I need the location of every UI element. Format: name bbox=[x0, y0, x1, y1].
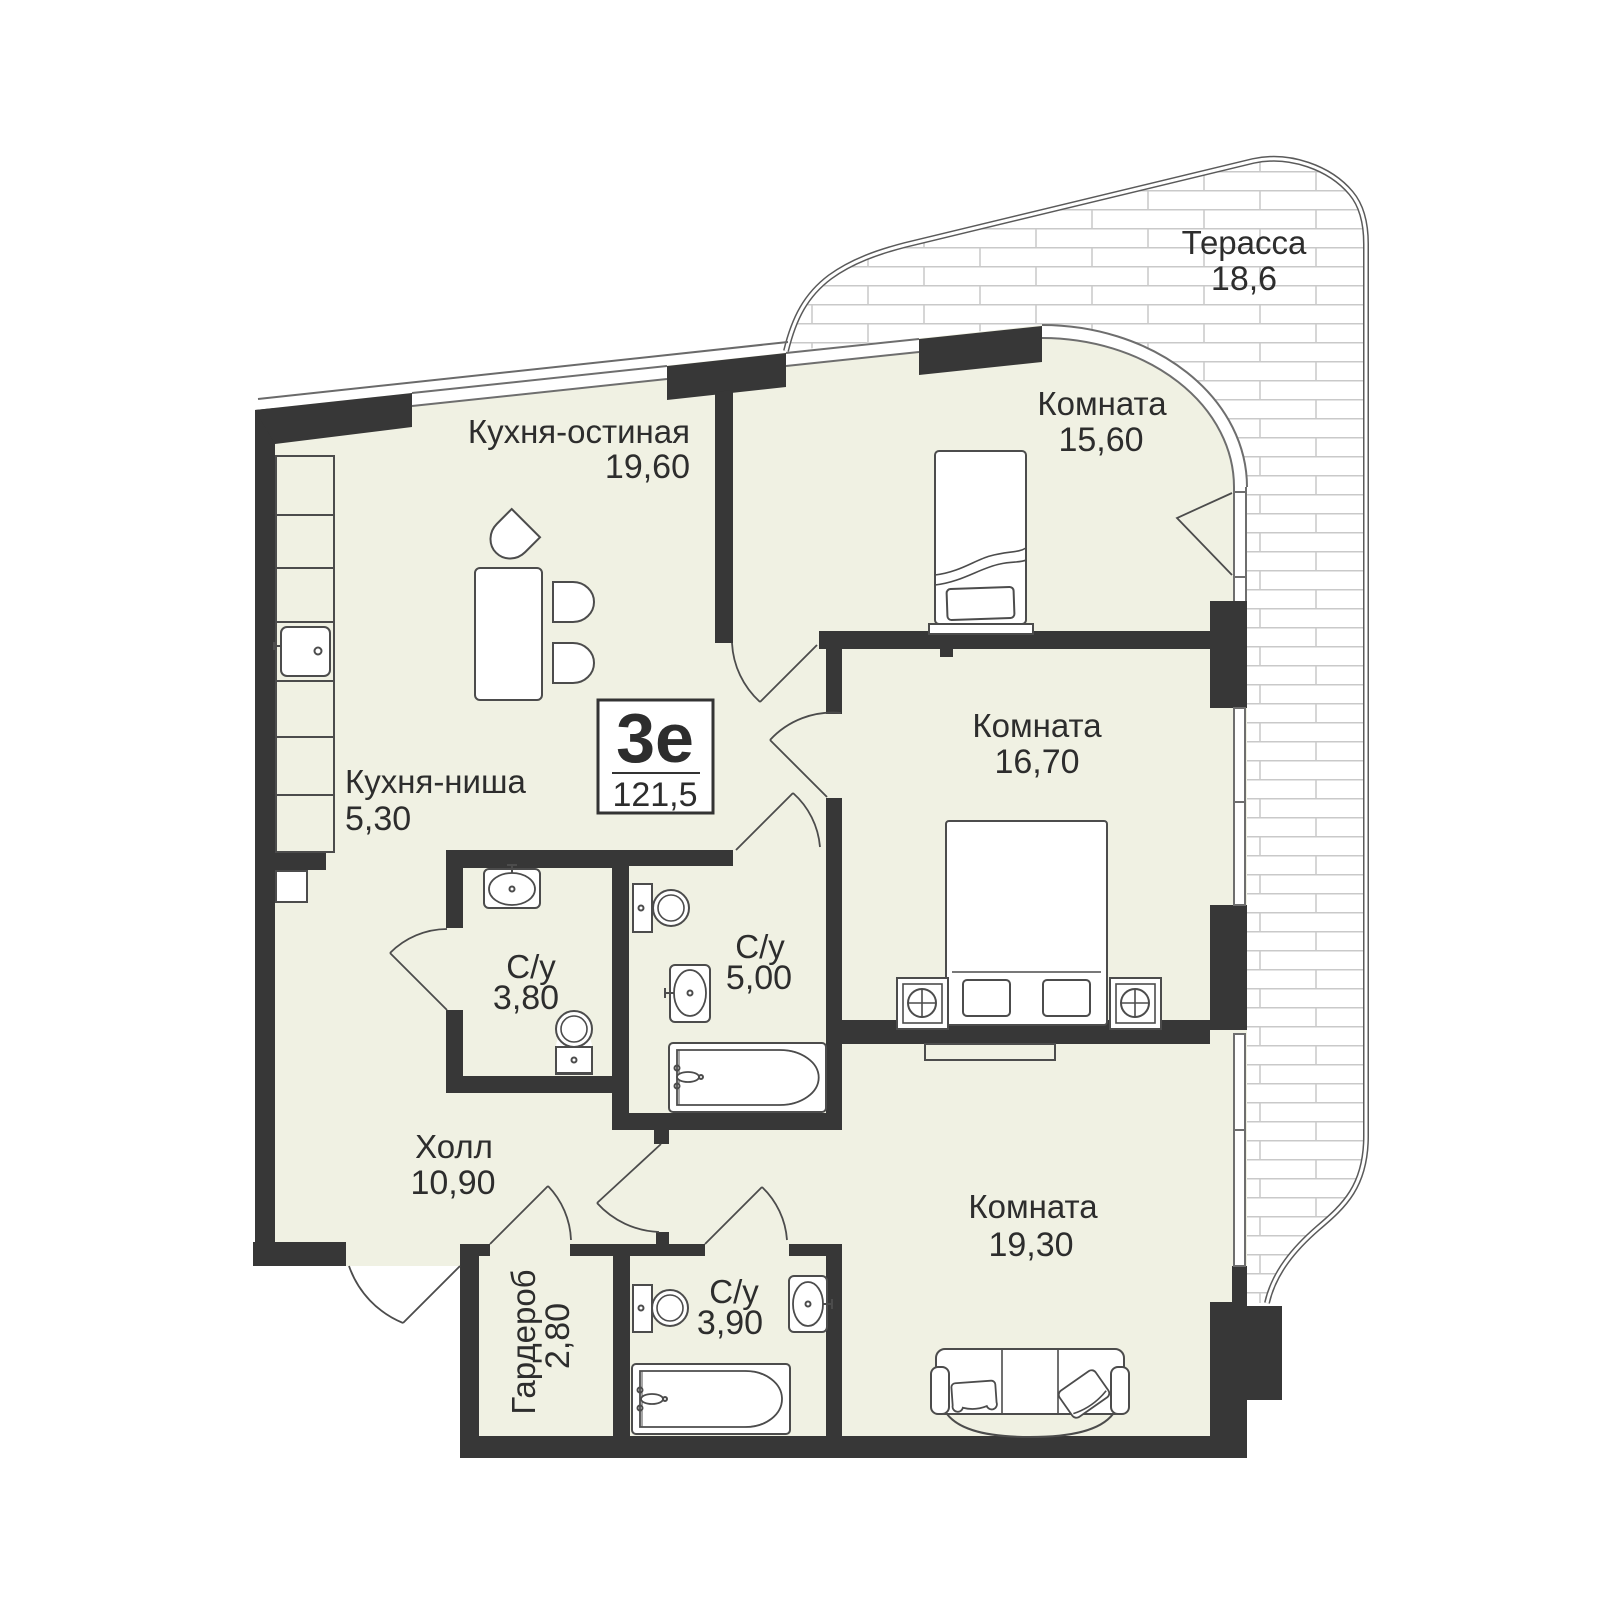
svg-text:3,80: 3,80 bbox=[493, 979, 559, 1017]
svg-text:3е: 3е bbox=[616, 699, 694, 777]
svg-text:5,00: 5,00 bbox=[726, 959, 792, 997]
svg-text:Терасса: Терасса bbox=[1182, 224, 1307, 261]
svg-text:121,5: 121,5 bbox=[612, 776, 697, 814]
svg-text:16,70: 16,70 bbox=[994, 743, 1079, 781]
svg-text:19,60: 19,60 bbox=[605, 448, 690, 486]
svg-text:15,60: 15,60 bbox=[1058, 421, 1143, 459]
svg-text:3,90: 3,90 bbox=[697, 1304, 763, 1342]
svg-text:2,80: 2,80 bbox=[539, 1303, 577, 1369]
svg-text:5,30: 5,30 bbox=[345, 800, 411, 838]
svg-text:Кухня-остиная: Кухня-остиная bbox=[468, 413, 690, 450]
svg-text:Кухня-ниша: Кухня-ниша bbox=[345, 763, 526, 800]
svg-text:Комната: Комната bbox=[1037, 385, 1167, 422]
svg-text:Гардероб: Гардероб bbox=[505, 1269, 542, 1414]
svg-text:10,90: 10,90 bbox=[410, 1164, 495, 1202]
svg-text:Комната: Комната bbox=[972, 707, 1102, 744]
svg-text:Комната: Комната bbox=[968, 1188, 1098, 1225]
svg-text:19,30: 19,30 bbox=[988, 1226, 1073, 1264]
svg-text:18,6: 18,6 bbox=[1211, 260, 1277, 298]
svg-text:Холл: Холл bbox=[415, 1128, 493, 1165]
